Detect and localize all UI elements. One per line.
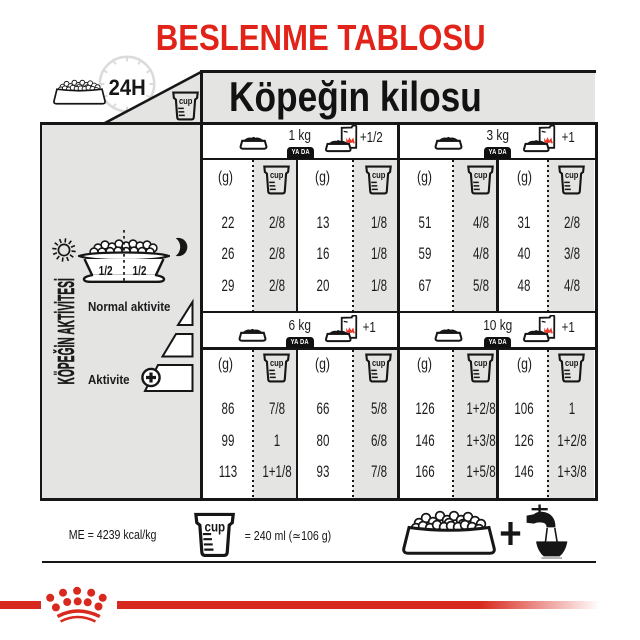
svg-text:cup: cup	[205, 518, 226, 534]
svg-text:cup: cup	[270, 169, 284, 179]
svg-text:cup: cup	[372, 169, 386, 179]
svg-text:cup: cup	[179, 95, 193, 105]
svg-text:1/2: 1/2	[99, 263, 113, 278]
svg-text:cup: cup	[565, 357, 579, 367]
svg-text:cup: cup	[372, 357, 386, 367]
svg-text:1/2: 1/2	[133, 263, 147, 278]
svg-text:cup: cup	[474, 169, 488, 179]
svg-text:cup: cup	[270, 357, 284, 367]
svg-text:cup: cup	[474, 357, 488, 367]
svg-text:cup: cup	[565, 169, 579, 179]
